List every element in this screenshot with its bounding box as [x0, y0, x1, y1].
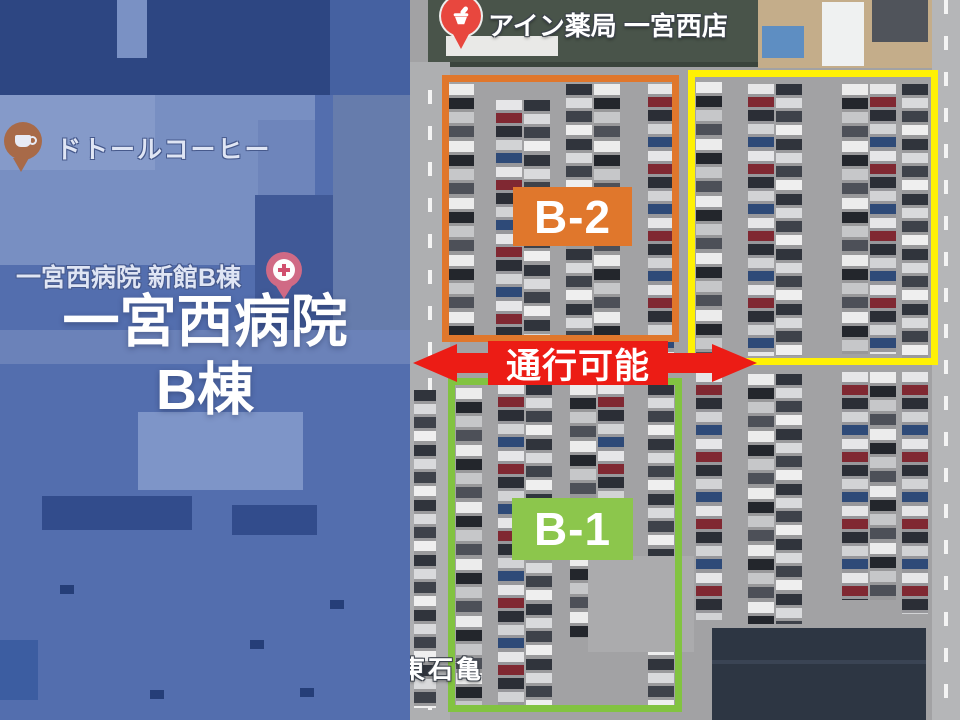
- medical-cross-icon: [273, 259, 295, 281]
- zone-b2-badge: B-2: [513, 187, 632, 246]
- mortar-pestle-icon: [450, 5, 472, 27]
- highlighted-hospital-region: ドトールコーヒー 一宮西病院 新館B棟 一宮西病院 B棟: [0, 0, 410, 720]
- dark-roof-building: [712, 628, 926, 720]
- parking-cars-strip: [902, 372, 928, 614]
- parking-cars-strip: [870, 372, 896, 600]
- coffee-pin-icon[interactable]: [4, 122, 42, 160]
- parking-cars-strip: [842, 372, 868, 600]
- pharmacy-pin-tail: [453, 34, 469, 49]
- hospital-pin-icon[interactable]: [266, 252, 302, 288]
- passage-label: 通行可能: [506, 338, 650, 389]
- road-dashes: [944, 0, 948, 720]
- zone-b1-badge: B-1: [512, 498, 633, 560]
- arrow-bar: [664, 353, 716, 373]
- region-title-line2: B棟: [0, 356, 410, 424]
- zone-b2-label: B-2: [534, 190, 611, 244]
- passage-label-box: 通行可能: [488, 341, 668, 385]
- blue-tarp: [762, 26, 804, 58]
- zone-parking-ok-outline: [688, 70, 938, 365]
- annotated-parking-map: B-2 B-1 駐車可能エリア 通行可能 アイン薬局 一宮西店 東石亀: [0, 0, 960, 720]
- coffee-cup-icon: [15, 135, 31, 147]
- pharmacy-label[interactable]: アイン薬局 一宮西店: [488, 6, 728, 43]
- parking-cars-strip: [748, 374, 774, 624]
- street-label: 東石亀: [400, 650, 484, 686]
- arrow-right-head: [712, 344, 757, 382]
- white-building: [822, 2, 864, 66]
- region-title: 一宮西病院 B棟: [0, 288, 410, 424]
- region-title-line1: 一宮西病院: [0, 288, 410, 356]
- parking-cars-strip: [776, 374, 802, 624]
- roof-ridge: [712, 660, 926, 664]
- zone-b1-label: B-1: [534, 502, 611, 556]
- arrow-bar: [453, 353, 491, 373]
- coffee-pin-tail: [13, 158, 29, 172]
- arrow-left-head: [413, 344, 457, 382]
- parking-cars-strip: [696, 372, 722, 620]
- gray-building: [872, 0, 928, 42]
- coffee-shop-label[interactable]: ドトールコーヒー: [56, 130, 272, 166]
